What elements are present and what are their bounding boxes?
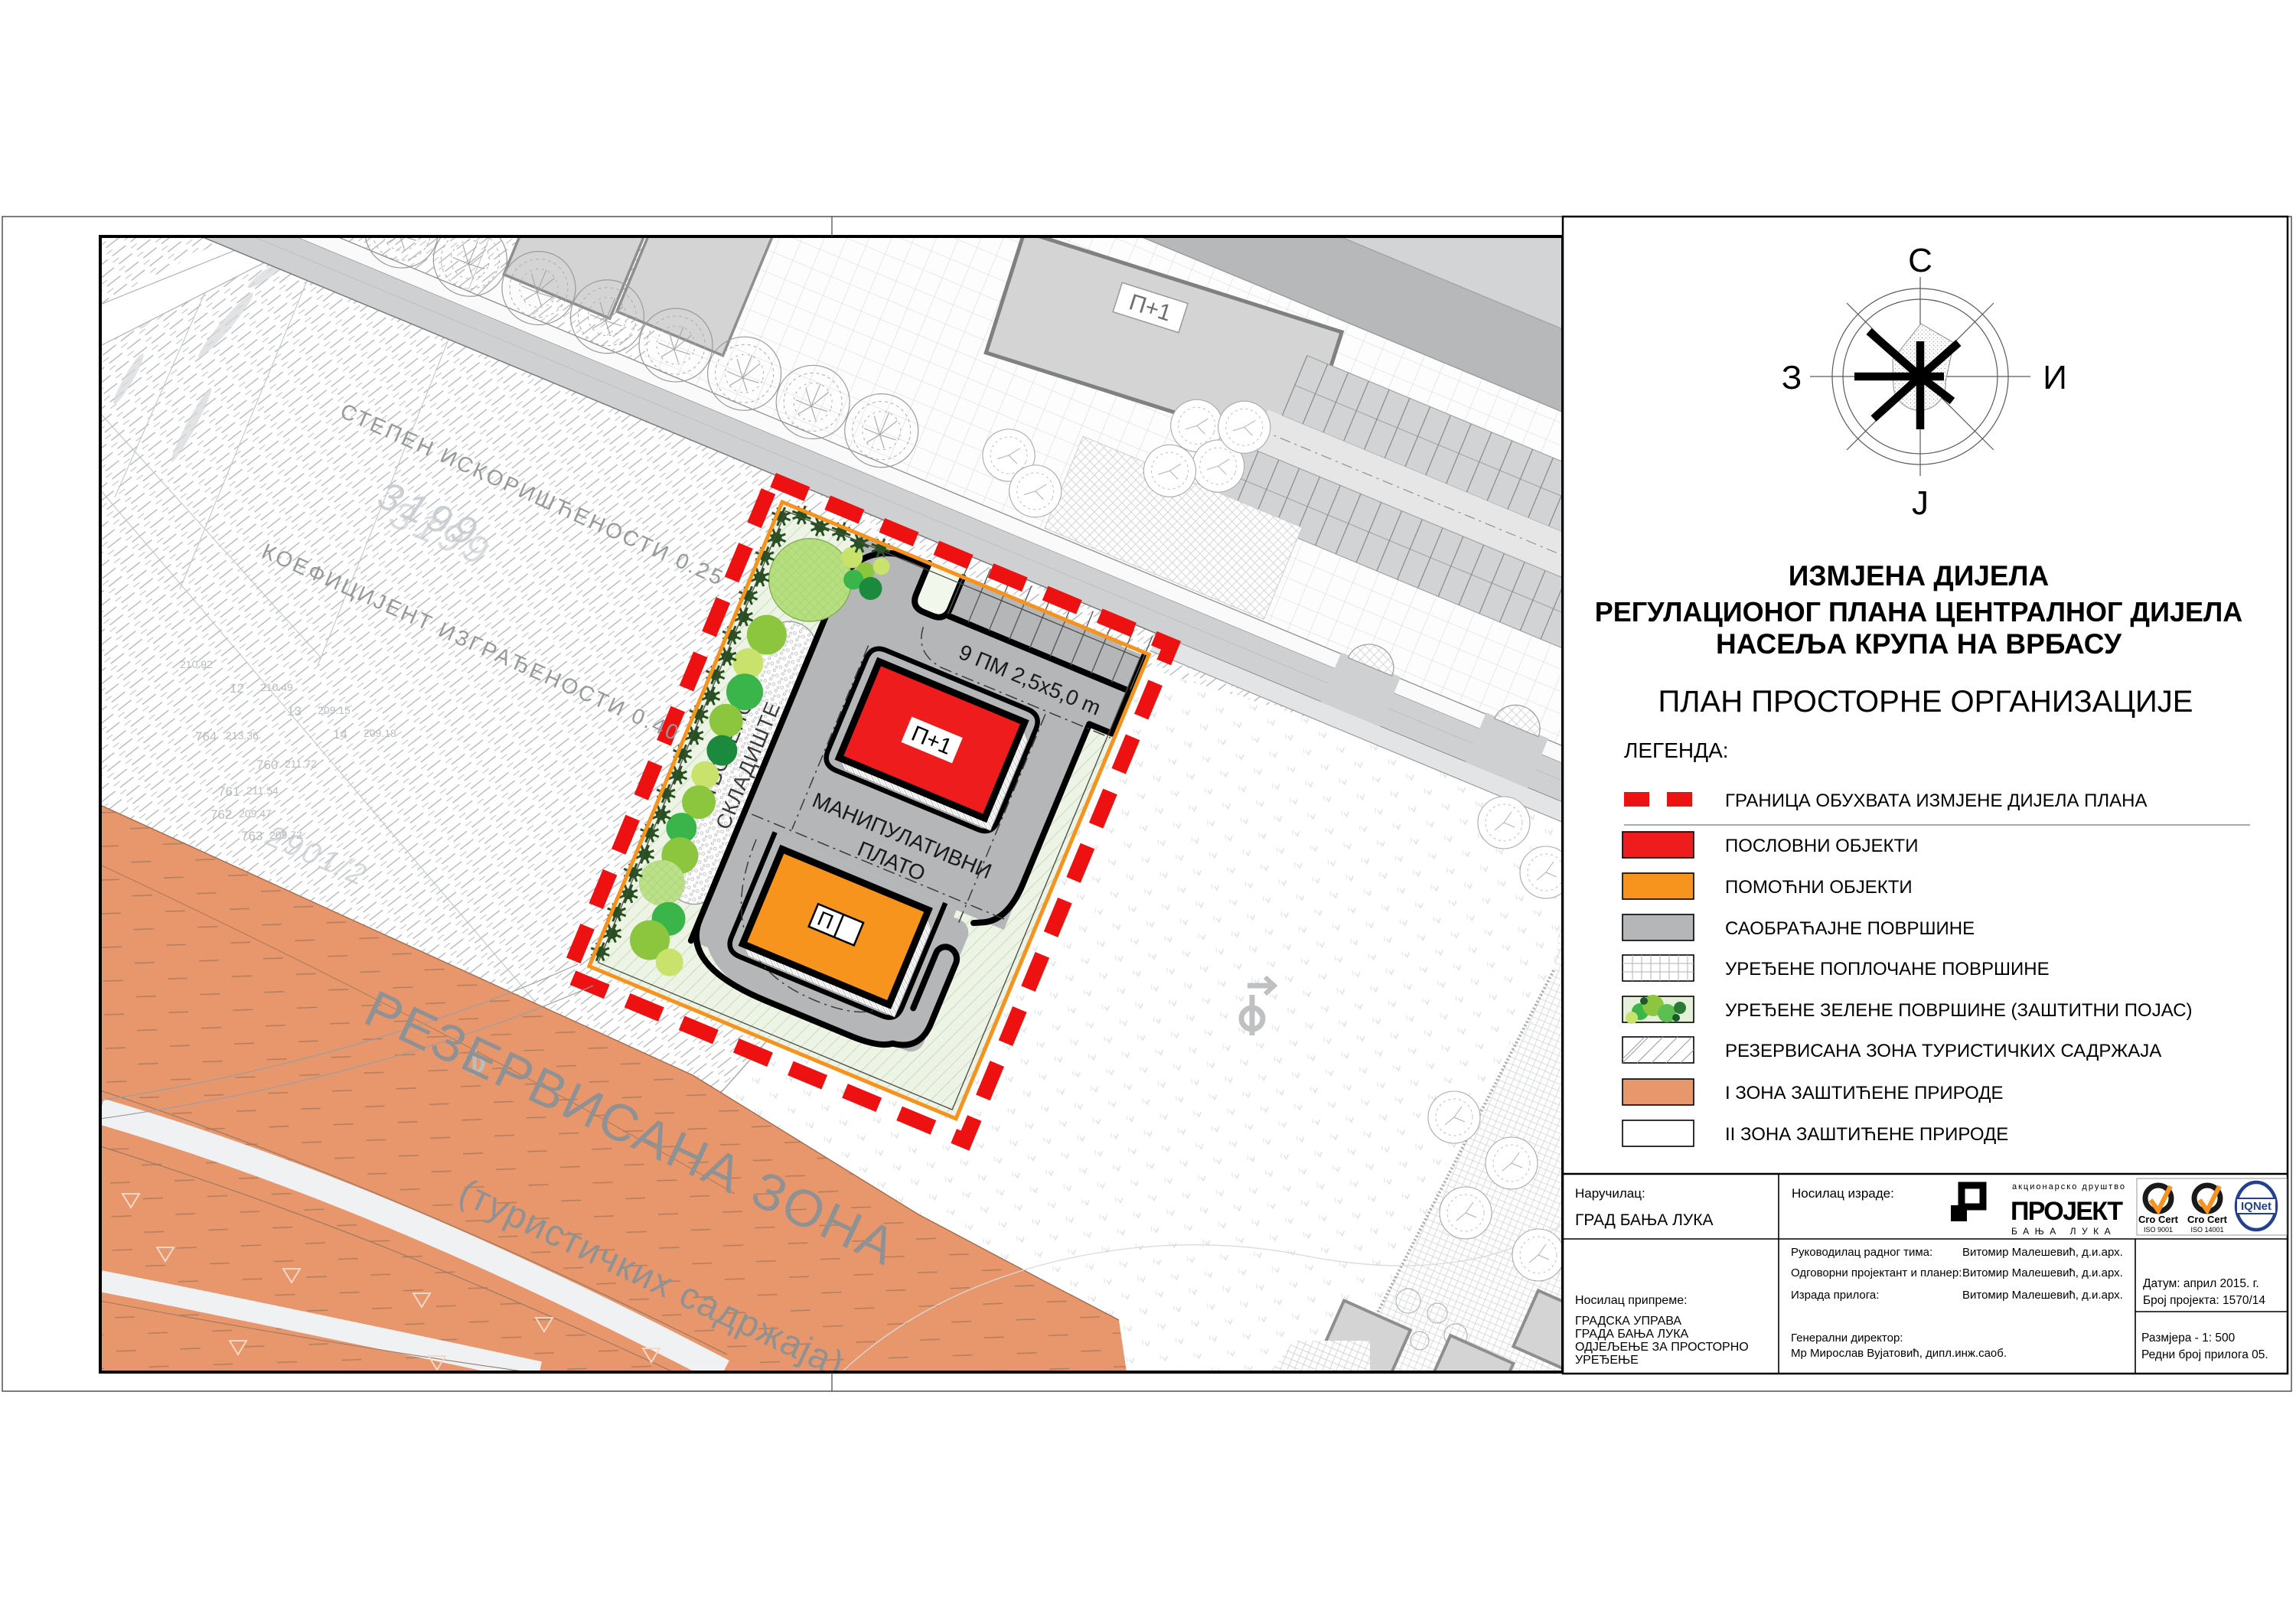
svg-text:ГРАДА БАЊА ЛУКА: ГРАДА БАЊА ЛУКА bbox=[1575, 1328, 1689, 1341]
svg-text:Одговорни пројектант и планер:: Одговорни пројектант и планер: bbox=[1791, 1266, 1962, 1279]
svg-text:ГРАД БАЊА ЛУКА: ГРАД БАЊА ЛУКА bbox=[1575, 1211, 1713, 1229]
svg-text:З: З bbox=[1782, 359, 1802, 396]
svg-text:Руководилац радног тима:: Руководилац радног тима: bbox=[1791, 1246, 1932, 1259]
svg-text:I ЗОНА ЗАШТИЋЕНЕ ПРИРОДЕ: I ЗОНА ЗАШТИЋЕНЕ ПРИРОДЕ bbox=[1725, 1083, 2004, 1103]
svg-text:РЕЗЕРВИСАНА ЗОНА ТУРИСТИЧКИХ С: РЕЗЕРВИСАНА ЗОНА ТУРИСТИЧКИХ САДРЖАЈА bbox=[1725, 1041, 2161, 1061]
svg-text:Редни број прилога 05.: Редни број прилога 05. bbox=[2141, 1348, 2268, 1361]
svg-text:Cro Cert: Cro Cert bbox=[2138, 1214, 2179, 1225]
svg-text:764: 764 bbox=[195, 729, 217, 744]
svg-text:Носилац израде:: Носилац израде: bbox=[1792, 1186, 1894, 1201]
svg-text:РЕГУЛАЦИОНОГ ПЛАНА ЦЕНТРАЛНОГ: РЕГУЛАЦИОНОГ ПЛАНА ЦЕНТРАЛНОГ ДИЈЕЛА bbox=[1595, 596, 2243, 627]
svg-text:13: 13 bbox=[287, 704, 302, 719]
svg-text:ПЛАН ПРОСТОРНЕ ОРГАНИЗАЦИЈЕ: ПЛАН ПРОСТОРНЕ ОРГАНИЗАЦИЈЕ bbox=[1658, 685, 2193, 719]
svg-text:Наручилац:: Наручилац: bbox=[1575, 1186, 1645, 1201]
svg-text:Генерални директор:: Генерални директор: bbox=[1791, 1332, 1903, 1345]
svg-text:210.92: 210.92 bbox=[180, 658, 213, 670]
svg-text:II ЗОНА ЗАШТИЋЕНЕ ПРИРОДЕ: II ЗОНА ЗАШТИЋЕНЕ ПРИРОДЕ bbox=[1725, 1124, 2008, 1145]
svg-text:Мр Мирослав Вујатовић, дипл.ин: Мр Мирослав Вујатовић, дипл.инж.саоб. bbox=[1791, 1347, 2007, 1360]
svg-text:ЛЕГЕНДА:: ЛЕГЕНДА: bbox=[1624, 738, 1729, 762]
svg-text:УРЕЂЕЊЕ: УРЕЂЕЊЕ bbox=[1575, 1354, 1639, 1367]
svg-text:Cro Cert: Cro Cert bbox=[2187, 1214, 2228, 1225]
svg-text:Витомир Малешевић, д.и.арх.: Витомир Малешевић, д.и.арх. bbox=[1962, 1246, 2123, 1259]
svg-text:211.54: 211.54 bbox=[246, 784, 279, 797]
svg-text:211.72: 211.72 bbox=[285, 758, 317, 770]
svg-text:Број пројекта: 1570/14: Број пројекта: 1570/14 bbox=[2143, 1294, 2265, 1307]
svg-text:763: 763 bbox=[241, 829, 263, 843]
svg-text:213.36: 213.36 bbox=[226, 729, 259, 742]
svg-text:Израда прилога:: Израда прилога: bbox=[1791, 1289, 1879, 1302]
svg-text:209.15: 209.15 bbox=[318, 704, 351, 716]
svg-text:761: 761 bbox=[218, 784, 240, 799]
svg-text:209.18: 209.18 bbox=[364, 727, 396, 739]
svg-text:Ј: Ј bbox=[1912, 484, 1929, 522]
svg-text:762: 762 bbox=[210, 807, 232, 822]
svg-text:Носилац припреме:: Носилац припреме: bbox=[1575, 1294, 1688, 1307]
svg-text:ПОСЛОВНИ ОБЈЕКТИ: ПОСЛОВНИ ОБЈЕКТИ bbox=[1725, 836, 1918, 856]
svg-text:И: И bbox=[2043, 359, 2067, 396]
svg-text:ОДЈЕЉЕЊЕ ЗА ПРОСТОРНО: ОДЈЕЉЕЊЕ ЗА ПРОСТОРНО bbox=[1575, 1341, 1749, 1354]
svg-text:209.72: 209.72 bbox=[269, 829, 302, 841]
svg-text:210.49: 210.49 bbox=[260, 681, 293, 693]
svg-text:БАЊА ЛУКА: БАЊА ЛУКА bbox=[2011, 1226, 2116, 1237]
svg-text:ISO 14001: ISO 14001 bbox=[2190, 1226, 2223, 1234]
svg-text:акционарско друштво: акционарско друштво bbox=[2012, 1182, 2126, 1191]
svg-text:ПОМОЋНИ ОБЈЕКТИ: ПОМОЋНИ ОБЈЕКТИ bbox=[1725, 877, 1913, 898]
svg-text:НАСЕЉА КРУПА НА ВРБАСУ: НАСЕЉА КРУПА НА ВРБАСУ bbox=[1716, 628, 2122, 660]
svg-text:УРЕЂЕНЕ ЗЕЛЕНЕ ПОВРШИНЕ (ЗАШТ: УРЕЂЕНЕ ЗЕЛЕНЕ ПОВРШИНЕ (ЗАШТИТНИ ПОЈАС) bbox=[1725, 1000, 2193, 1021]
svg-text:209.47: 209.47 bbox=[239, 807, 272, 820]
svg-text:ISO 9001: ISO 9001 bbox=[2144, 1226, 2173, 1234]
svg-text:Витомир Малешевић, д.и.арх.: Витомир Малешевић, д.и.арх. bbox=[1962, 1266, 2123, 1279]
svg-text:ГРАДСКА УПРАВА: ГРАДСКА УПРАВА bbox=[1575, 1315, 1681, 1328]
svg-text:IQNet: IQNet bbox=[2241, 1200, 2272, 1213]
svg-text:14: 14 bbox=[333, 727, 347, 742]
svg-text:УРЕЂЕНЕ ПОПЛОЧАНЕ ПОВРШИНЕ: УРЕЂЕНЕ ПОПЛОЧАНЕ ПОВРШИНЕ bbox=[1725, 959, 2050, 980]
svg-text:САОБРАЋАЈНЕ ПОВРШИНЕ: САОБРАЋАЈНЕ ПОВРШИНЕ bbox=[1725, 918, 1975, 939]
svg-text:С: С bbox=[1908, 242, 1932, 279]
svg-text:ГРАНИЦА ОБУХВАТА ИЗМЈЕНЕ ДИЈЕЛ: ГРАНИЦА ОБУХВАТА ИЗМЈЕНЕ ДИЈЕЛА ПЛАНА bbox=[1725, 790, 2147, 811]
svg-text:Размјера - 1: 500: Размјера - 1: 500 bbox=[2141, 1332, 2236, 1345]
svg-text:Датум: април 2015. г.: Датум: април 2015. г. bbox=[2143, 1277, 2259, 1290]
svg-text:12: 12 bbox=[230, 681, 244, 696]
svg-text:ИЗМЈЕНА ДИЈЕЛА: ИЗМЈЕНА ДИЈЕЛА bbox=[1789, 560, 2049, 592]
svg-text:Витомир Малешевић, д.и.арх.: Витомир Малешевић, д.и.арх. bbox=[1962, 1289, 2123, 1302]
svg-text:760: 760 bbox=[256, 758, 278, 772]
svg-text:ПРОЈЕКТ: ПРОЈЕКТ bbox=[2011, 1197, 2123, 1226]
